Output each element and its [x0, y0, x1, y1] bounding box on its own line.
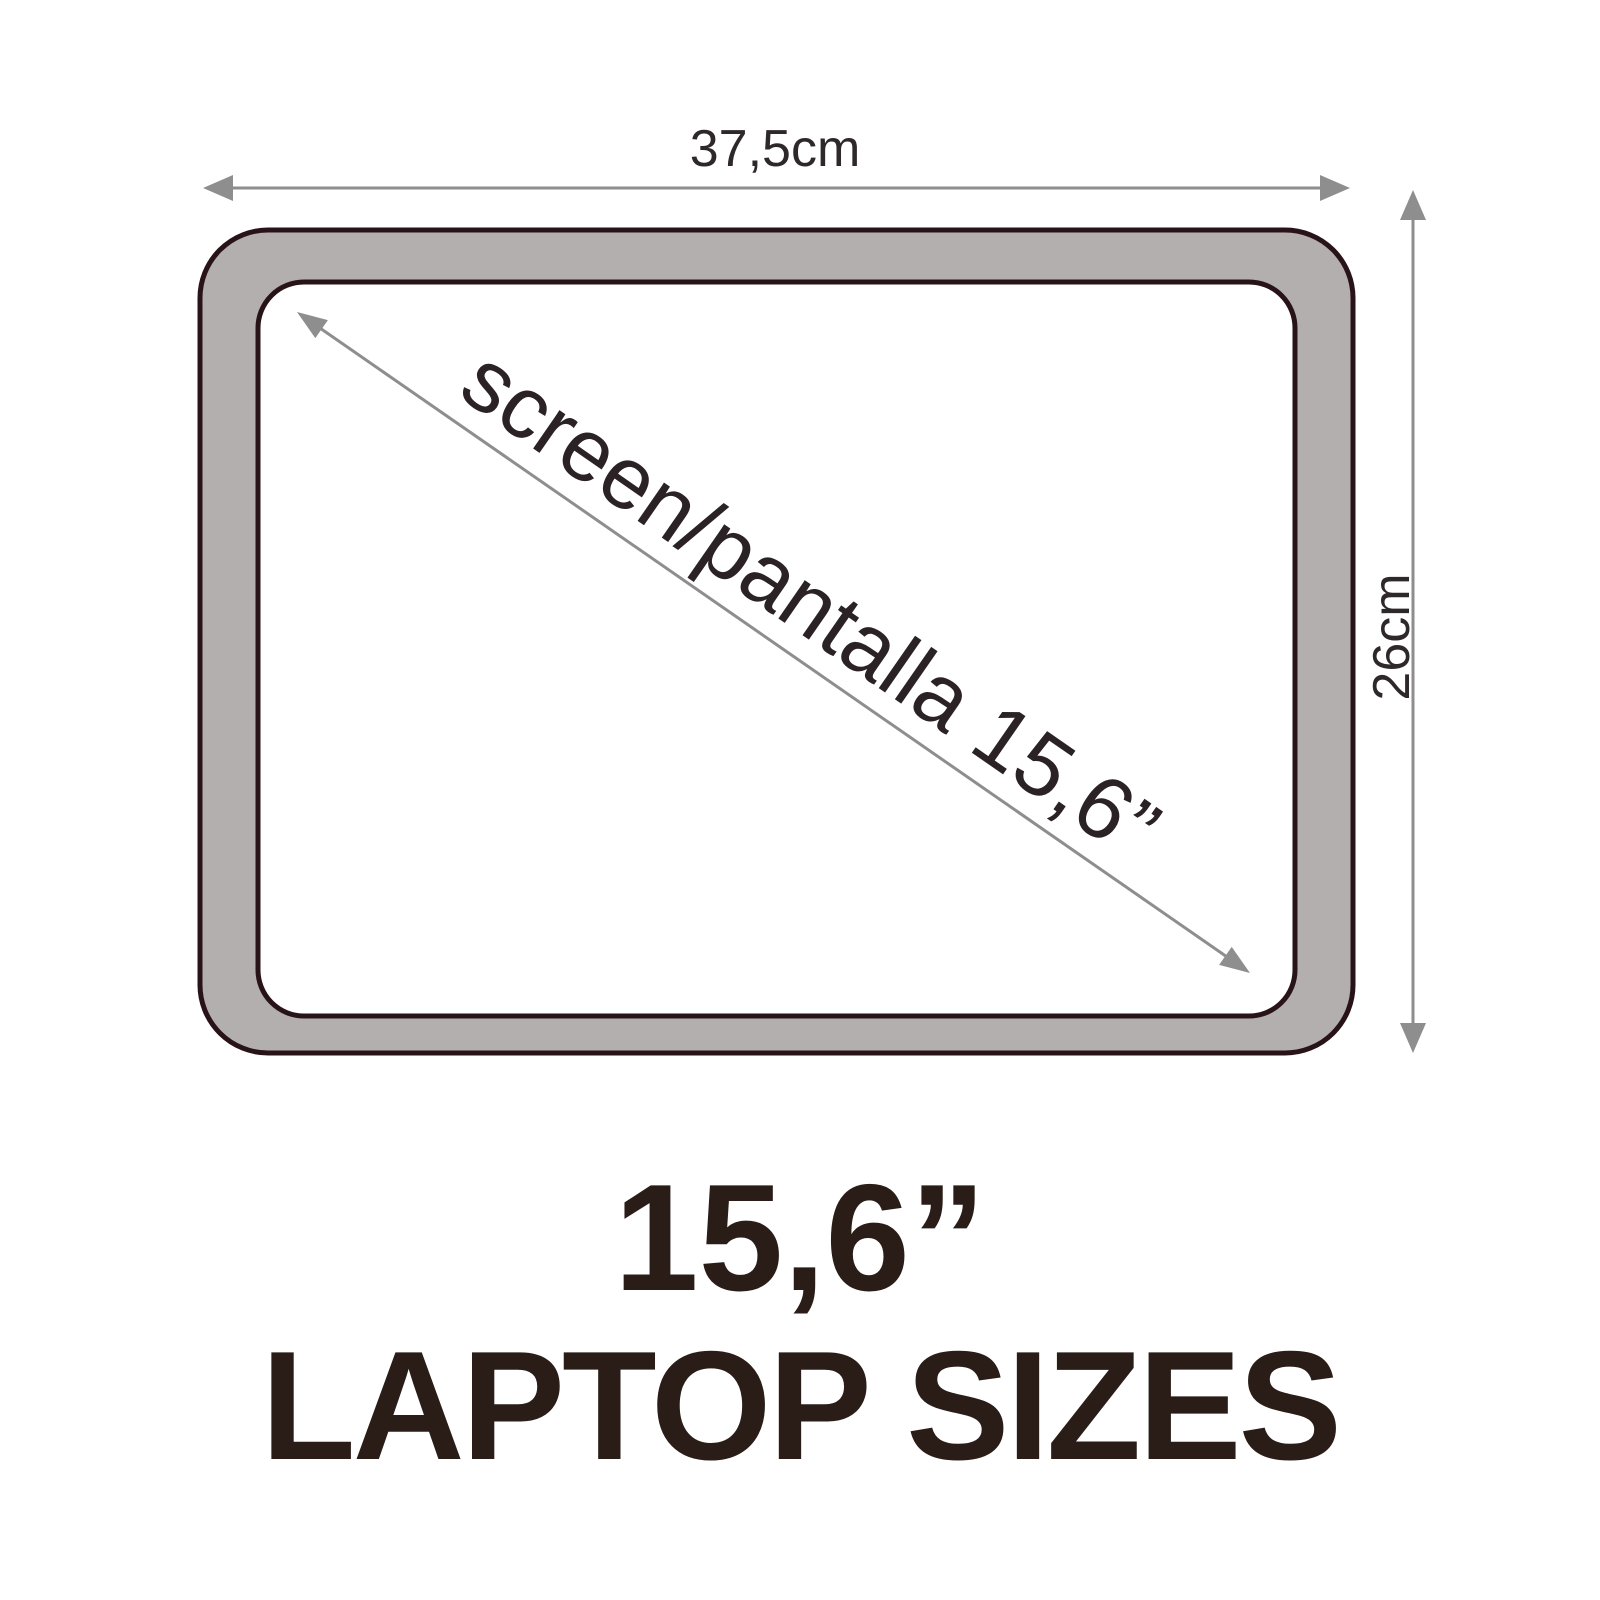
height-arrow-bottom-head-icon: [1400, 1023, 1426, 1053]
width-arrow-right-head-icon: [1320, 175, 1350, 201]
height-arrow-top-head-icon: [1400, 190, 1426, 220]
laptop-sizes-caption: LAPTOP SIZES: [0, 1328, 1600, 1483]
width-dimension-label: 37,5cm: [200, 123, 1350, 175]
laptop-sizes-infographic: 37,5cm 26cm screen/pantalla 15,6” 15,6” …: [0, 0, 1600, 1600]
width-dimension-arrow: [203, 175, 1350, 201]
height-dimension-label: 26cm: [1362, 537, 1422, 737]
width-arrow-left-head-icon: [203, 175, 233, 201]
screen-size-title: 15,6”: [0, 1162, 1600, 1314]
